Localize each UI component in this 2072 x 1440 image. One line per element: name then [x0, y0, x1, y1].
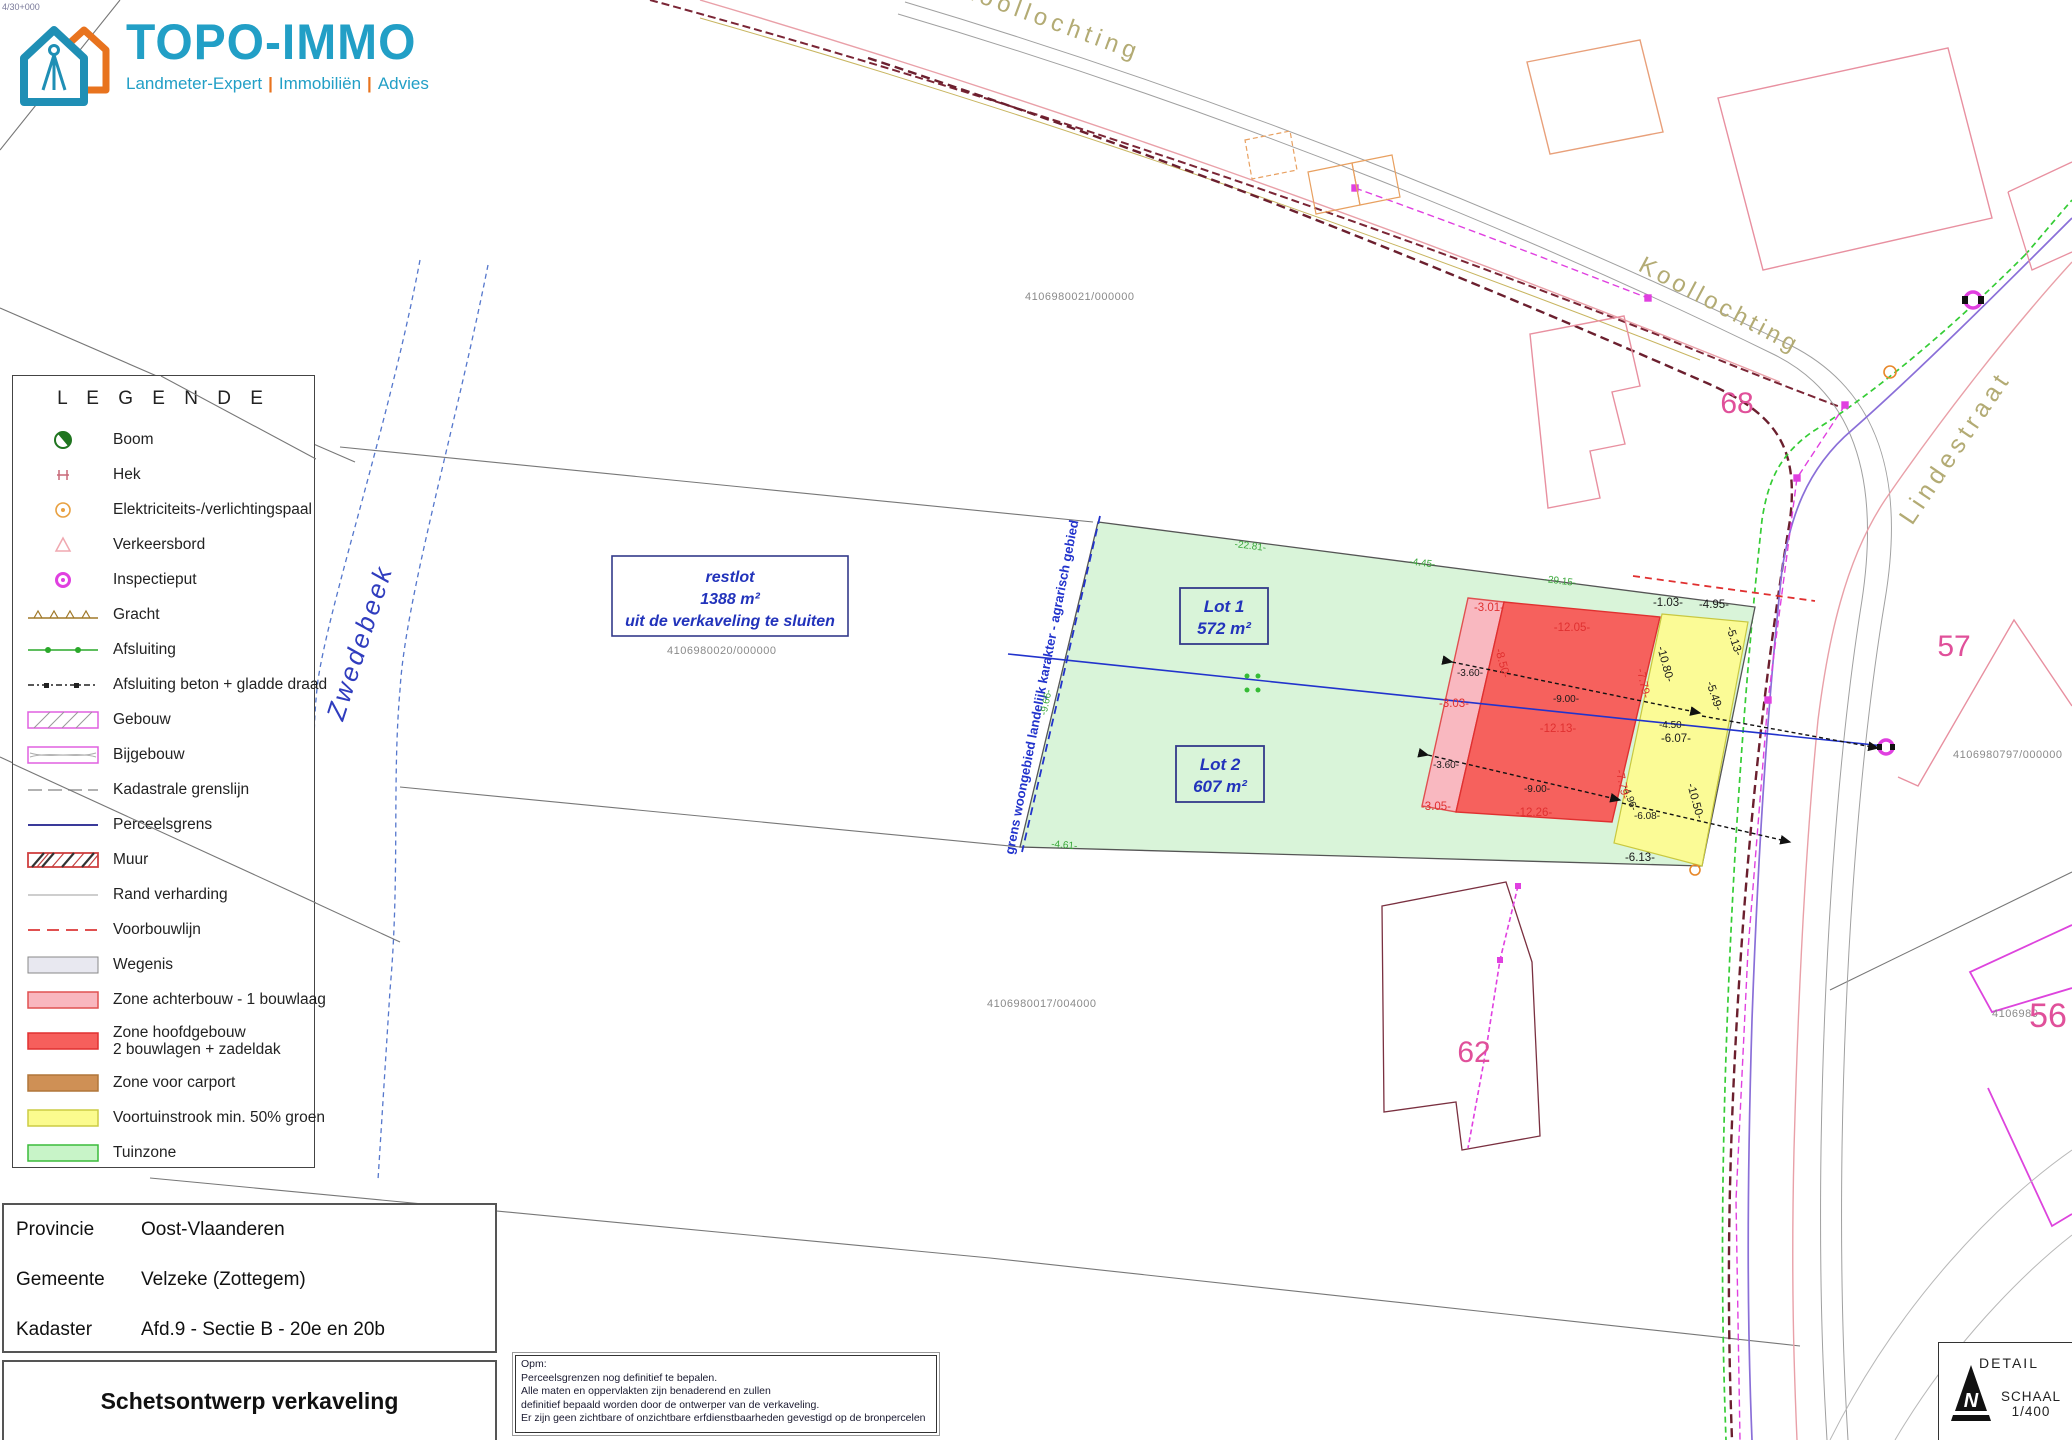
tuinzone-icon — [13, 1141, 113, 1165]
street-label-zwedebeek: Zwedebeek — [320, 561, 399, 725]
legend-item-tuinzone: Tuinzone — [13, 1135, 314, 1170]
legend-item-wegenis: Wegenis — [13, 947, 314, 982]
lichtpaal-symbol-1 — [1690, 865, 1700, 875]
legend-item-inspectieput: Inspectieput — [13, 562, 314, 597]
note-line: Alle maten en oppervlakten zijn benadere… — [521, 1385, 931, 1399]
legend-item-kadastrale-grenslijn: Kadastrale grenslijn — [13, 772, 314, 807]
road-lindestraat — [1723, 200, 2072, 1440]
zone-hoofdgebouw-icon — [13, 1029, 113, 1053]
drawing-title: Schetsontwerp verkaveling — [101, 1388, 399, 1415]
note-line: definitief bepaald worden door de ontwer… — [521, 1399, 931, 1413]
detail-scale-box: N DETAIL SCHAAL 1/400 — [1938, 1342, 2072, 1440]
muur-icon — [13, 848, 113, 872]
svg-text:-1.03-: -1.03- — [1653, 597, 1683, 609]
verkeersbord-icon — [13, 533, 113, 557]
gracht-icon — [13, 603, 113, 627]
remarks-box: Opm: Perceelsgrenzen nog definitief te b… — [512, 1352, 940, 1436]
inspectieput-symbol-2 — [1962, 292, 1984, 308]
svg-text:-12.26-: -12.26- — [1516, 807, 1553, 819]
sheet-reference: 4/30+000 — [2, 2, 40, 12]
svg-text:-9.00-: -9.00- — [1524, 784, 1550, 795]
note-line: Opm: — [521, 1358, 931, 1372]
svg-text:56: 56 — [2029, 997, 2067, 1035]
svg-text:Lot 2: Lot 2 — [1200, 755, 1241, 774]
legend-item-voorbouwlijn: Voorbouwlijn — [13, 912, 314, 947]
logo-wordmark: TOPO-IMMO — [126, 14, 417, 70]
bijgebouw-icon — [13, 743, 113, 767]
zone-achterbouw-icon — [13, 988, 113, 1012]
north-arrow-icon: N — [1949, 1363, 1993, 1425]
lichtpaal-icon — [13, 498, 113, 522]
legend-title: L E G E N D E — [13, 376, 314, 422]
logo-tagline: Landmeter-Expert|Immobiliën|Advies — [126, 74, 429, 94]
svg-text:-3.01-: -3.01- — [1474, 602, 1504, 614]
legend-item-verlichtingspaal: Elektriciteits-/verlichtingspaal — [13, 492, 314, 527]
svg-text:-6.08-: -6.08- — [1634, 811, 1660, 822]
tagline-part-1: Landmeter-Expert — [126, 74, 262, 93]
gebouw-icon — [13, 708, 113, 732]
afsluiting-icon — [13, 638, 113, 662]
info-row-kadaster: Kadaster Afd.9 - Sectie B - 20e en 20b — [4, 1305, 495, 1355]
boom-icon — [13, 428, 113, 452]
voortuinstrook-icon — [13, 1106, 113, 1130]
street-label-koollochting-2: Koollochting — [1634, 251, 1805, 359]
svg-text:607 m²: 607 m² — [1193, 777, 1248, 796]
legend-item-afsluiting: Afsluiting — [13, 632, 314, 667]
legend-item-verkeersbord: Verkeersbord — [13, 527, 314, 562]
svg-text:68: 68 — [1720, 387, 1753, 420]
legend-item-afsluiting-beton: Afsluiting beton + gladde draad — [13, 667, 314, 702]
legend-item-gebouw: Gebouw — [13, 702, 314, 737]
legend-item-rand-verharding: Rand verharding — [13, 877, 314, 912]
tagline-part-2: Immobiliën — [279, 74, 361, 93]
svg-text:-3.05-: -3.05- — [1421, 801, 1451, 813]
svg-text:-6.13-: -6.13- — [1625, 852, 1655, 864]
street-label-koollochting-1: Koollochting — [956, 0, 1144, 66]
kadastrale-lijn-icon — [13, 778, 113, 802]
svg-text:-6.07-: -6.07- — [1661, 733, 1691, 745]
info-row-provincie: Provincie Oost-Vlaanderen — [4, 1205, 495, 1255]
scale-label: SCHAAL 1/400 — [2001, 1389, 2061, 1419]
legend-item-bijgebouw: Bijgebouw — [13, 737, 314, 772]
legend-item-hek: Hek — [13, 457, 314, 492]
svg-text:-4.95-: -4.95- — [1699, 599, 1729, 611]
hek-icon — [13, 463, 113, 487]
info-row-gemeente: Gemeente Velzeke (Zottegem) — [4, 1255, 495, 1305]
detail-label: DETAIL — [1979, 1355, 2039, 1371]
svg-text:-9.00-: -9.00- — [1553, 694, 1579, 705]
svg-text:-3.60-: -3.60- — [1457, 668, 1483, 679]
svg-text:4106980017/004000: 4106980017/004000 — [987, 998, 1096, 1010]
legend-item-zone-achterbouw: Zone achterbouw - 1 bouwlaag — [13, 982, 314, 1017]
zwedebeek-stream — [295, 260, 488, 1180]
logo-houses-icon — [16, 14, 112, 108]
note-line: Er zijn geen zichtbare of onzichtbare er… — [521, 1412, 931, 1426]
note-line: Perceelsgrenzen nog definitief te bepale… — [521, 1372, 931, 1386]
svg-text:-4.61-: -4.61- — [1051, 839, 1078, 852]
legend-item-perceelsgrens: Perceelsgrens — [13, 807, 314, 842]
svg-text:Lot 1: Lot 1 — [1204, 597, 1245, 616]
street-label-lindestraat: Lindestraat — [1894, 366, 2017, 530]
tagline-separator: | — [361, 74, 378, 93]
legend-item-gracht: Gracht — [13, 597, 314, 632]
svg-text:57: 57 — [1937, 630, 1970, 663]
svg-text:N: N — [1964, 1390, 1979, 1412]
svg-text:4106980797/000000: 4106980797/000000 — [1953, 749, 2062, 761]
legend-item-zone-hoofdgebouw: Zone hoofdgebouw2 bouwlagen + zadeldak — [13, 1017, 314, 1065]
zone-carport-icon — [13, 1071, 113, 1095]
svg-text:-3.03-: -3.03- — [1439, 698, 1469, 710]
inspectieput-symbol-1 — [1877, 740, 1895, 754]
legend-item-zone-carport: Zone voor carport — [13, 1065, 314, 1100]
svg-text:-12.05-: -12.05- — [1554, 622, 1591, 634]
svg-text:-4.50-: -4.50- — [1659, 720, 1685, 731]
svg-text:62: 62 — [1457, 1036, 1490, 1069]
company-logo: TOPO-IMMO Landmeter-Expert|Immobiliën|Ad… — [16, 14, 429, 108]
drawing-title-box: Schetsontwerp verkaveling — [2, 1360, 497, 1440]
svg-text:-3.60-: -3.60- — [1433, 760, 1459, 771]
svg-text:4106980020/000000: 4106980020/000000 — [667, 645, 776, 657]
project-info-table: Provincie Oost-Vlaanderen Gemeente Velze… — [2, 1203, 497, 1353]
inspectieput-icon — [13, 568, 113, 592]
legend-item-voortuinstrook: Voortuinstrook min. 50% groen — [13, 1100, 314, 1135]
legend-item-muur: Muur — [13, 842, 314, 877]
tagline-separator: | — [262, 74, 279, 93]
perceelsgrens-icon — [13, 813, 113, 837]
wegenis-icon — [13, 953, 113, 977]
plan-sheet: Zwedebeek Koollochting Koollochting Lind… — [0, 0, 2072, 1440]
svg-text:restlot: restlot — [706, 569, 756, 586]
rand-verharding-icon — [13, 883, 113, 907]
svg-text:uit de verkaveling te sluiten: uit de verkaveling te sluiten — [625, 613, 835, 630]
svg-text:4106980021/000000: 4106980021/000000 — [1025, 291, 1134, 303]
svg-text:1388 m²: 1388 m² — [700, 591, 760, 608]
tagline-part-3: Advies — [378, 74, 429, 93]
voorbouwlijn-icon — [13, 918, 113, 942]
legend-panel: L E G E N D E Boom Hek Elektriciteits-/v… — [12, 375, 315, 1168]
svg-text:-12.13-: -12.13- — [1540, 723, 1577, 735]
afsluiting-beton-icon — [13, 673, 113, 697]
legend-item-boom: Boom — [13, 422, 314, 457]
svg-text:572 m²: 572 m² — [1197, 619, 1252, 638]
restlot-label: restlot 1388 m² uit de verkaveling te sl… — [612, 556, 848, 636]
